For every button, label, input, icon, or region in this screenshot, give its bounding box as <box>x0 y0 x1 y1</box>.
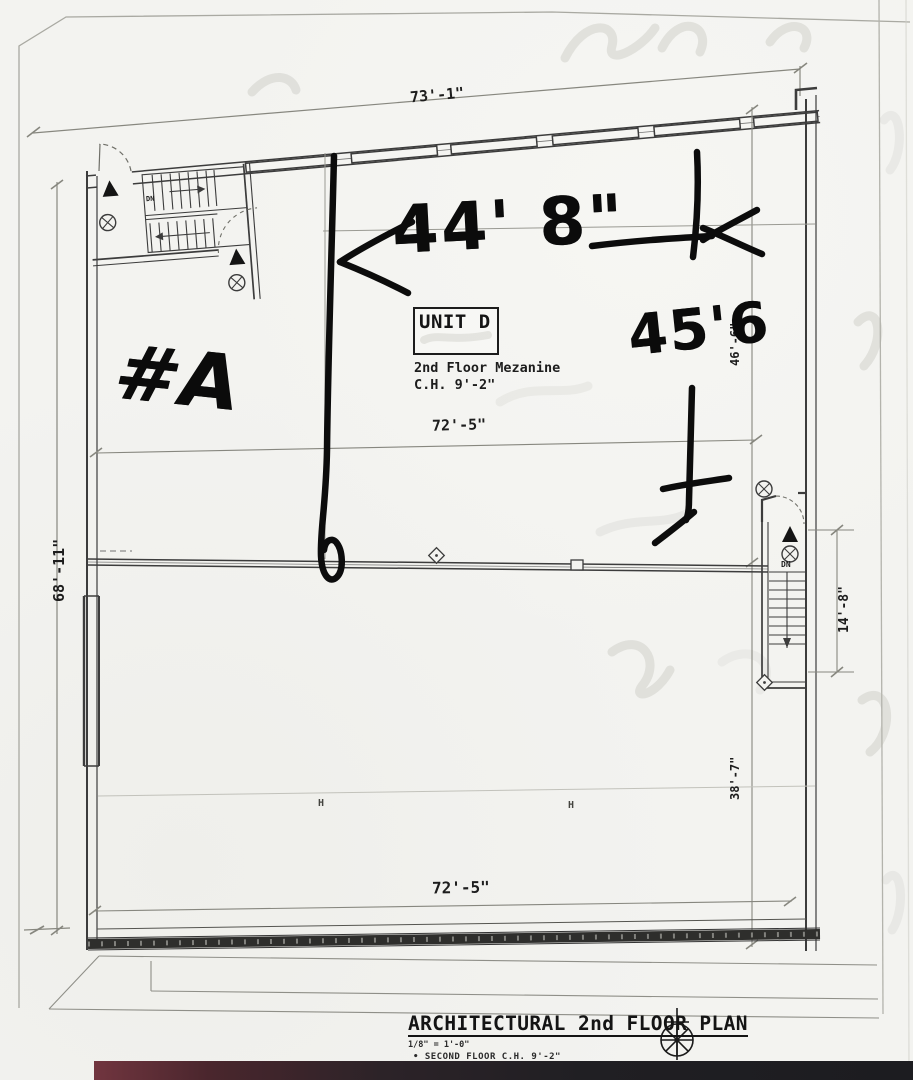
top-wall-window-band <box>86 106 821 190</box>
sidewalk-band <box>49 956 879 1018</box>
entry-door-swing <box>99 144 131 171</box>
mid-dimension-line <box>90 435 762 457</box>
sheet-border-lines <box>19 0 910 1080</box>
wall-diamond-symbol <box>429 548 445 564</box>
left-wall <box>84 171 99 950</box>
drawing-title: ARCHITECTURAL 2nd FLOOR PLAN <box>408 1014 748 1037</box>
unit-subline-1: 2nd Floor Mezanine <box>414 362 560 376</box>
right-wall <box>796 88 817 951</box>
column-symbol-2: H <box>568 801 574 811</box>
survey-marker-icon <box>99 214 116 231</box>
exit-triangle-icon <box>228 248 245 265</box>
dim-mid-label: 72'-5" <box>432 417 487 433</box>
dim-left-label: 68'-11" <box>52 539 67 602</box>
bottom-wall <box>88 919 820 950</box>
stair-dn-right-label: DN <box>781 561 791 569</box>
column-symbol-1: H <box>318 799 324 809</box>
unit-label: UNIT D <box>415 309 497 333</box>
unit-label-box: UNIT D <box>413 307 499 355</box>
survey-marker-icon <box>228 274 245 291</box>
drawing-title-text: ARCHITECTURAL 2nd FLOOR PLAN <box>408 1014 748 1037</box>
survey-marker-icon <box>756 481 772 497</box>
wall-junction-box <box>571 560 583 570</box>
stair-dn-left-label: DN <box>146 196 155 204</box>
ghost-bleedthrough-marks <box>252 26 901 930</box>
handwritten-unit-mark: #A <box>107 334 247 421</box>
photo-edge-strip <box>94 1061 913 1080</box>
unit-subline-2: C.H. 9'-2" <box>414 379 495 393</box>
middle-separation-wall <box>88 548 768 572</box>
right-dimension-line <box>746 105 758 949</box>
dim-stair-label: 14'-8" <box>838 586 851 633</box>
bottom-dimension-line <box>89 897 796 915</box>
scanned-floor-plan-sheet: 73'-1" 72'-5" 72'-5" 68'-11" 46'-6" 38'-… <box>0 0 913 1080</box>
plan-linework <box>0 0 913 1080</box>
drawing-scale-note: 1/8" = 1'-0" <box>408 1041 469 1050</box>
dim-right-lower-label: 38'-7" <box>729 757 741 800</box>
dim-bottom-label: 72'-5" <box>432 879 490 896</box>
exit-triangle-icon <box>782 526 798 542</box>
handwritten-height-note: 45'6 <box>625 295 772 366</box>
handwritten-width-note: 44' 8" <box>390 186 626 264</box>
